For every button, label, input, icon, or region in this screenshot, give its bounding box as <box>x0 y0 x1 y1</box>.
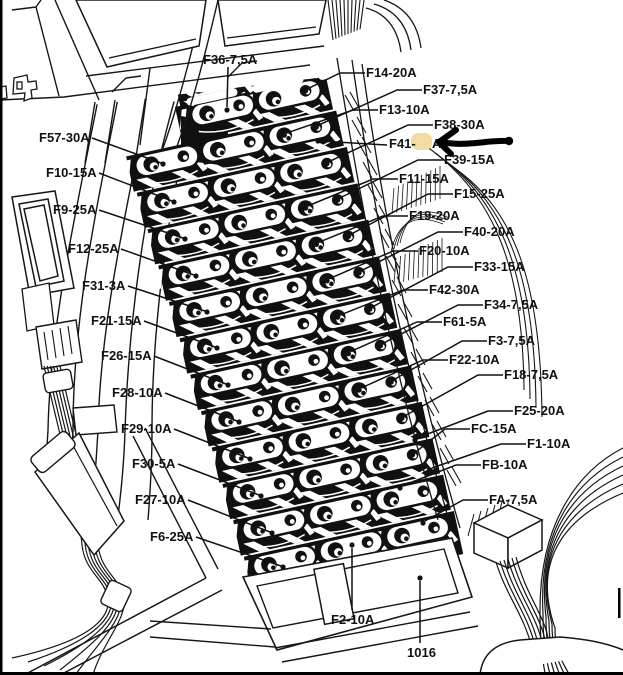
svg-text:F18-7,5A: F18-7,5A <box>504 367 559 382</box>
svg-text:F12-25A: F12-25A <box>68 241 119 256</box>
svg-text:F61-5A: F61-5A <box>443 314 487 329</box>
svg-text:FB-10A: FB-10A <box>482 457 528 472</box>
svg-text:F11-15A: F11-15A <box>399 171 449 186</box>
svg-text:F13-10A: F13-10A <box>379 102 430 117</box>
svg-text:F27-10A: F27-10A <box>135 492 186 507</box>
svg-text:FC-15A: FC-15A <box>471 421 517 436</box>
svg-text:F30-5A: F30-5A <box>132 456 176 471</box>
svg-text:F14-20A: F14-20A <box>366 65 417 80</box>
svg-text:F26-15A: F26-15A <box>101 348 152 363</box>
svg-text:F20-10A: F20-10A <box>419 243 470 258</box>
svg-text:F6-25A: F6-25A <box>150 529 194 544</box>
svg-text:F29-10A: F29-10A <box>121 421 172 436</box>
svg-text:F40-20A: F40-20A <box>464 224 515 239</box>
svg-text:FA-7,5A: FA-7,5A <box>489 492 538 507</box>
svg-text:F38-30A: F38-30A <box>434 117 485 132</box>
svg-text:F22-10A: F22-10A <box>449 352 500 367</box>
svg-text:F57-30A: F57-30A <box>39 130 90 145</box>
svg-text:F15-25A: F15-25A <box>454 186 505 201</box>
svg-text:F21-15A: F21-15A <box>91 313 142 328</box>
svg-text:F33-15A: F33-15A <box>474 259 525 274</box>
svg-text:F34-7,5A: F34-7,5A <box>484 297 539 312</box>
svg-text:F41-: F41- <box>389 136 416 151</box>
svg-text:F31-3A: F31-3A <box>82 278 126 293</box>
svg-text:F37-7,5A: F37-7,5A <box>423 82 478 97</box>
svg-text:F9-25A: F9-25A <box>53 202 97 217</box>
svg-text:F19-20A: F19-20A <box>409 208 460 223</box>
svg-text:F36-7,5A: F36-7,5A <box>203 52 258 67</box>
svg-text:F42-30A: F42-30A <box>429 282 480 297</box>
svg-text:F2-10A: F2-10A <box>331 612 375 627</box>
svg-text:F10-15A: F10-15A <box>46 165 97 180</box>
svg-text:F25-20A: F25-20A <box>514 403 565 418</box>
svg-text:F1-10A: F1-10A <box>527 436 571 451</box>
svg-text:F28-10A: F28-10A <box>112 385 163 400</box>
svg-text:F3-7,5A: F3-7,5A <box>488 333 536 348</box>
svg-text:1016: 1016 <box>407 645 436 660</box>
